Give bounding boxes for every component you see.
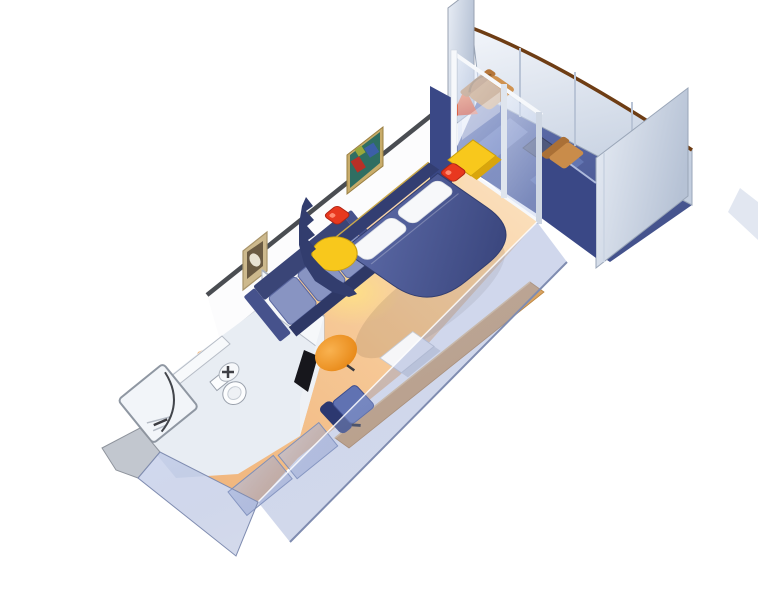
stateroom-scene (0, 0, 758, 590)
glass-frame-post-mid (501, 84, 507, 198)
glass-frame-post-left (451, 50, 457, 162)
glass-frame-post-right (536, 112, 542, 224)
stateroom-floorplan-image (0, 0, 758, 590)
